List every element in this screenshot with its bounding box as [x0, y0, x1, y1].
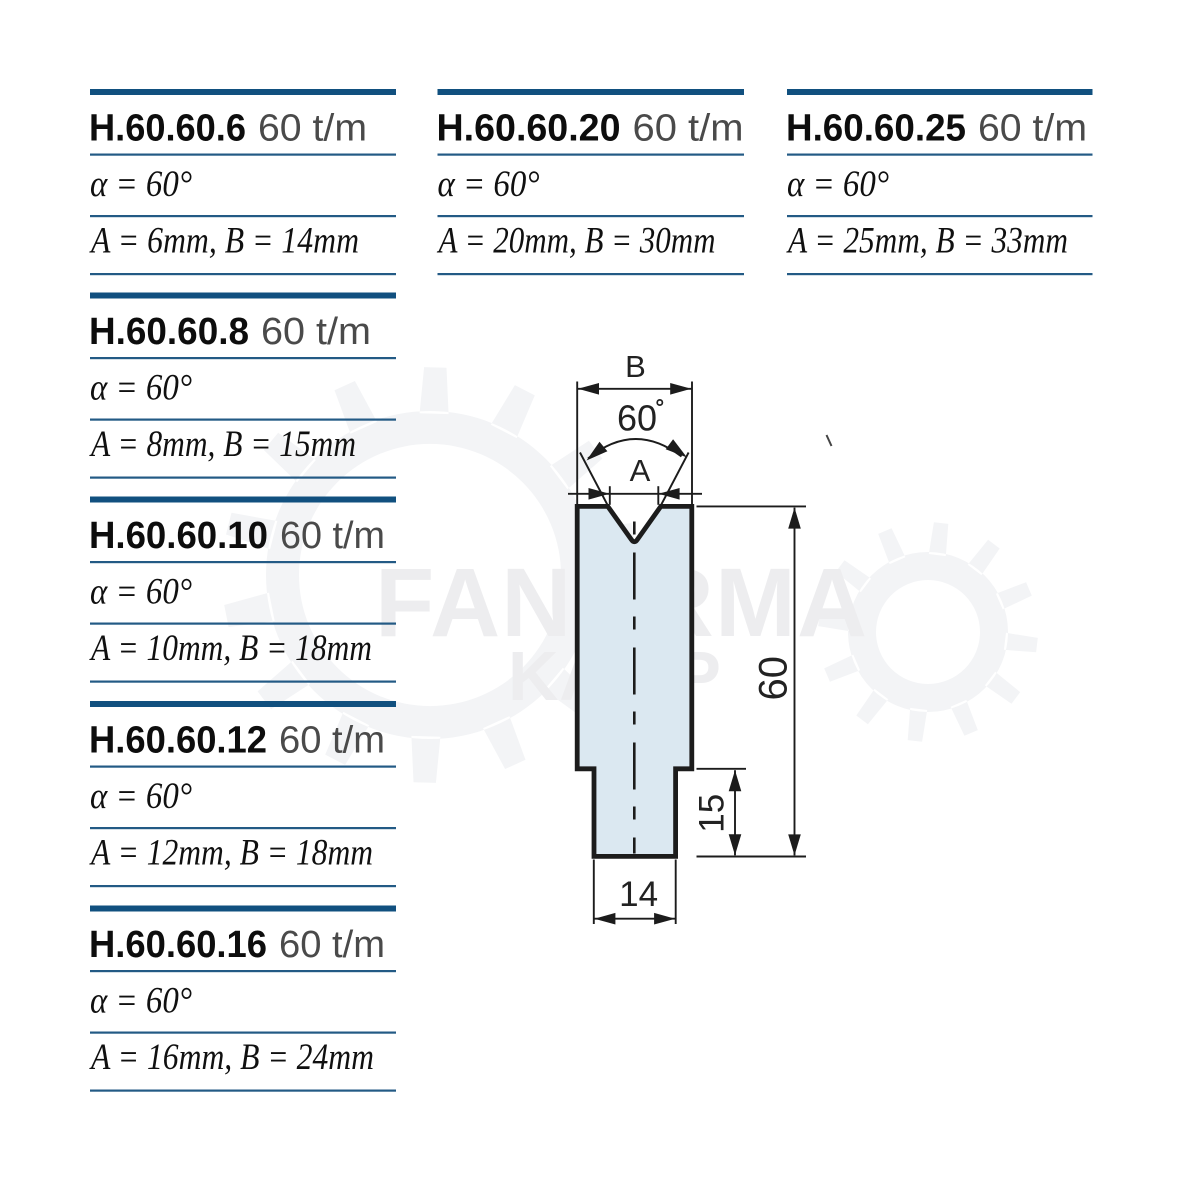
svg-text:15: 15: [693, 794, 732, 833]
svg-text:α = 60°: α = 60°: [90, 572, 192, 613]
svg-text:α = 60°: α = 60°: [438, 164, 540, 205]
svg-text:60: 60: [752, 656, 796, 701]
svg-text:H.60.60.16: H.60.60.16: [89, 924, 267, 966]
svg-text:α = 60°: α = 60°: [90, 776, 192, 817]
svg-text:60 t/m: 60 t/m: [978, 108, 1087, 150]
svg-text:A = 25mm, B = 33mm: A = 25mm, B = 33mm: [785, 221, 1068, 262]
svg-text:60 t/m: 60 t/m: [280, 515, 385, 557]
svg-text:60 t/m: 60 t/m: [633, 108, 744, 150]
svg-text:60 t/m: 60 t/m: [279, 720, 385, 762]
svg-text:H.60.60.8: H.60.60.8: [89, 311, 249, 353]
svg-text:H.60.60.10: H.60.60.10: [89, 515, 268, 557]
svg-text:A = 6mm, B = 14mm: A = 6mm, B = 14mm: [88, 221, 359, 262]
svg-text:A = 20mm, B = 30mm: A = 20mm, B = 30mm: [436, 221, 716, 262]
svg-text:α = 60°: α = 60°: [787, 164, 889, 205]
svg-text:14: 14: [619, 875, 658, 914]
svg-text:H.60.60.6: H.60.60.6: [89, 108, 246, 150]
svg-text:B: B: [625, 349, 646, 384]
svg-text:H.60.60.20: H.60.60.20: [437, 108, 621, 150]
svg-text:A = 8mm, B = 15mm: A = 8mm, B = 15mm: [88, 424, 356, 465]
svg-text:60: 60: [617, 398, 657, 439]
svg-text:60 t/m: 60 t/m: [258, 108, 367, 150]
svg-text:A = 16mm, B = 24mm: A = 16mm, B = 24mm: [88, 1037, 374, 1078]
svg-text:H.60.60.12: H.60.60.12: [89, 720, 267, 762]
svg-text:H.60.60.25: H.60.60.25: [786, 108, 966, 150]
svg-text:60 t/m: 60 t/m: [261, 311, 371, 353]
svg-text:α = 60°: α = 60°: [90, 164, 192, 205]
svg-text:A = 12mm, B = 18mm: A = 12mm, B = 18mm: [88, 833, 373, 874]
svg-text:60 t/m: 60 t/m: [279, 924, 385, 966]
svg-text:α = 60°: α = 60°: [90, 981, 192, 1022]
svg-text:α = 60°: α = 60°: [90, 368, 192, 409]
svg-text:A = 10mm, B = 18mm: A = 10mm, B = 18mm: [88, 628, 372, 669]
svg-text:A: A: [630, 453, 651, 488]
